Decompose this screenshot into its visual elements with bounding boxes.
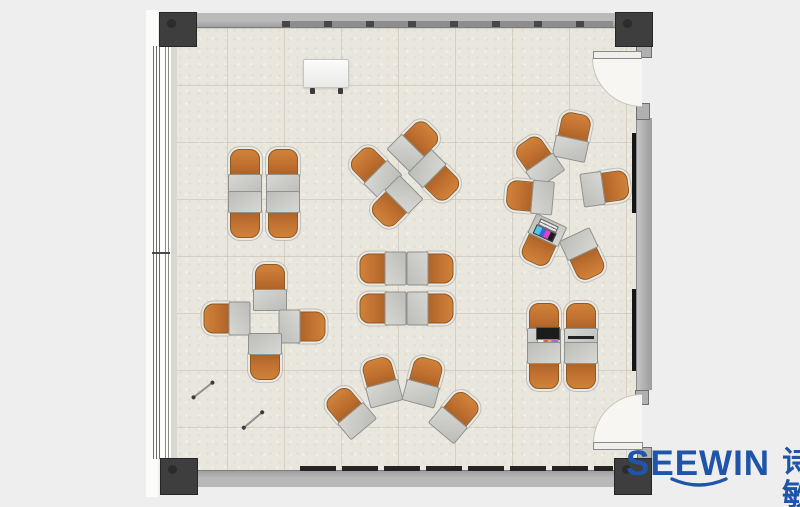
desk-chair-unit — [204, 301, 251, 335]
column-top-left — [159, 12, 197, 47]
brand-chinese-name: 诗敏 — [782, 446, 800, 507]
chair-icon — [255, 264, 285, 292]
chair-icon — [566, 361, 596, 389]
desk-icon — [564, 342, 598, 364]
desk-chair-unit — [253, 264, 287, 311]
desk-icon — [530, 179, 555, 215]
desk-chair-unit — [360, 291, 407, 325]
desk-icon — [579, 170, 606, 207]
door-leaf-top-right — [593, 51, 642, 59]
top-wall-track — [282, 21, 613, 27]
chair-icon — [360, 253, 388, 283]
desk-chair-unit — [248, 333, 282, 380]
desk-chair-unit — [279, 309, 326, 343]
right-wall — [636, 118, 652, 390]
desk-chair-unit — [360, 251, 407, 285]
desk-chair-unit — [505, 177, 555, 215]
brand-logo: SEEWIN 诗敏 — [626, 446, 800, 507]
column-bottom-left — [160, 458, 198, 495]
brand-wordmark: SEEWIN — [626, 446, 770, 481]
desk-chair-unit — [407, 251, 454, 285]
chair-icon — [204, 303, 232, 333]
chair-icon — [566, 303, 596, 331]
mobile-whiteboard — [303, 59, 349, 88]
logo-swoosh-icon — [670, 477, 728, 489]
ruler-icon — [568, 336, 594, 339]
chair-icon — [298, 311, 326, 341]
desk-icon — [385, 251, 407, 285]
chair-icon — [360, 293, 388, 323]
desk-icon — [248, 333, 282, 355]
chair-icon — [230, 149, 260, 177]
desk-chair-unit — [228, 191, 262, 238]
chair-icon — [529, 361, 559, 389]
desk-icon — [407, 251, 429, 285]
wall-panel-lower — [632, 289, 636, 371]
desk-chair-unit — [266, 149, 300, 196]
chair-icon — [268, 210, 298, 238]
wall-panel-upper — [632, 133, 636, 213]
chair-icon — [230, 210, 260, 238]
desk-icon — [385, 291, 407, 325]
desk-icon — [228, 191, 262, 213]
left-window-wall — [150, 46, 177, 459]
desk-chair-unit — [527, 342, 561, 389]
column-top-right — [615, 12, 653, 47]
desk-chair-unit — [564, 342, 598, 389]
desk-icon — [266, 191, 300, 213]
chair-icon — [426, 293, 454, 323]
desk-icon — [253, 289, 287, 311]
floor-plan-canvas: SEEWIN 诗敏 — [0, 0, 800, 507]
desk-chair-unit — [228, 149, 262, 196]
desk-icon — [229, 301, 251, 335]
chair-icon — [426, 253, 454, 283]
chair-icon — [268, 149, 298, 177]
bottom-wall — [196, 470, 615, 487]
chair-icon — [250, 352, 280, 380]
desk-chair-unit — [266, 191, 300, 238]
desk-chair-unit — [407, 291, 454, 325]
desk-icon — [527, 342, 561, 364]
bottom-wall-track — [300, 466, 613, 471]
desk-chair-unit — [579, 167, 630, 207]
desk-icon — [407, 291, 429, 325]
